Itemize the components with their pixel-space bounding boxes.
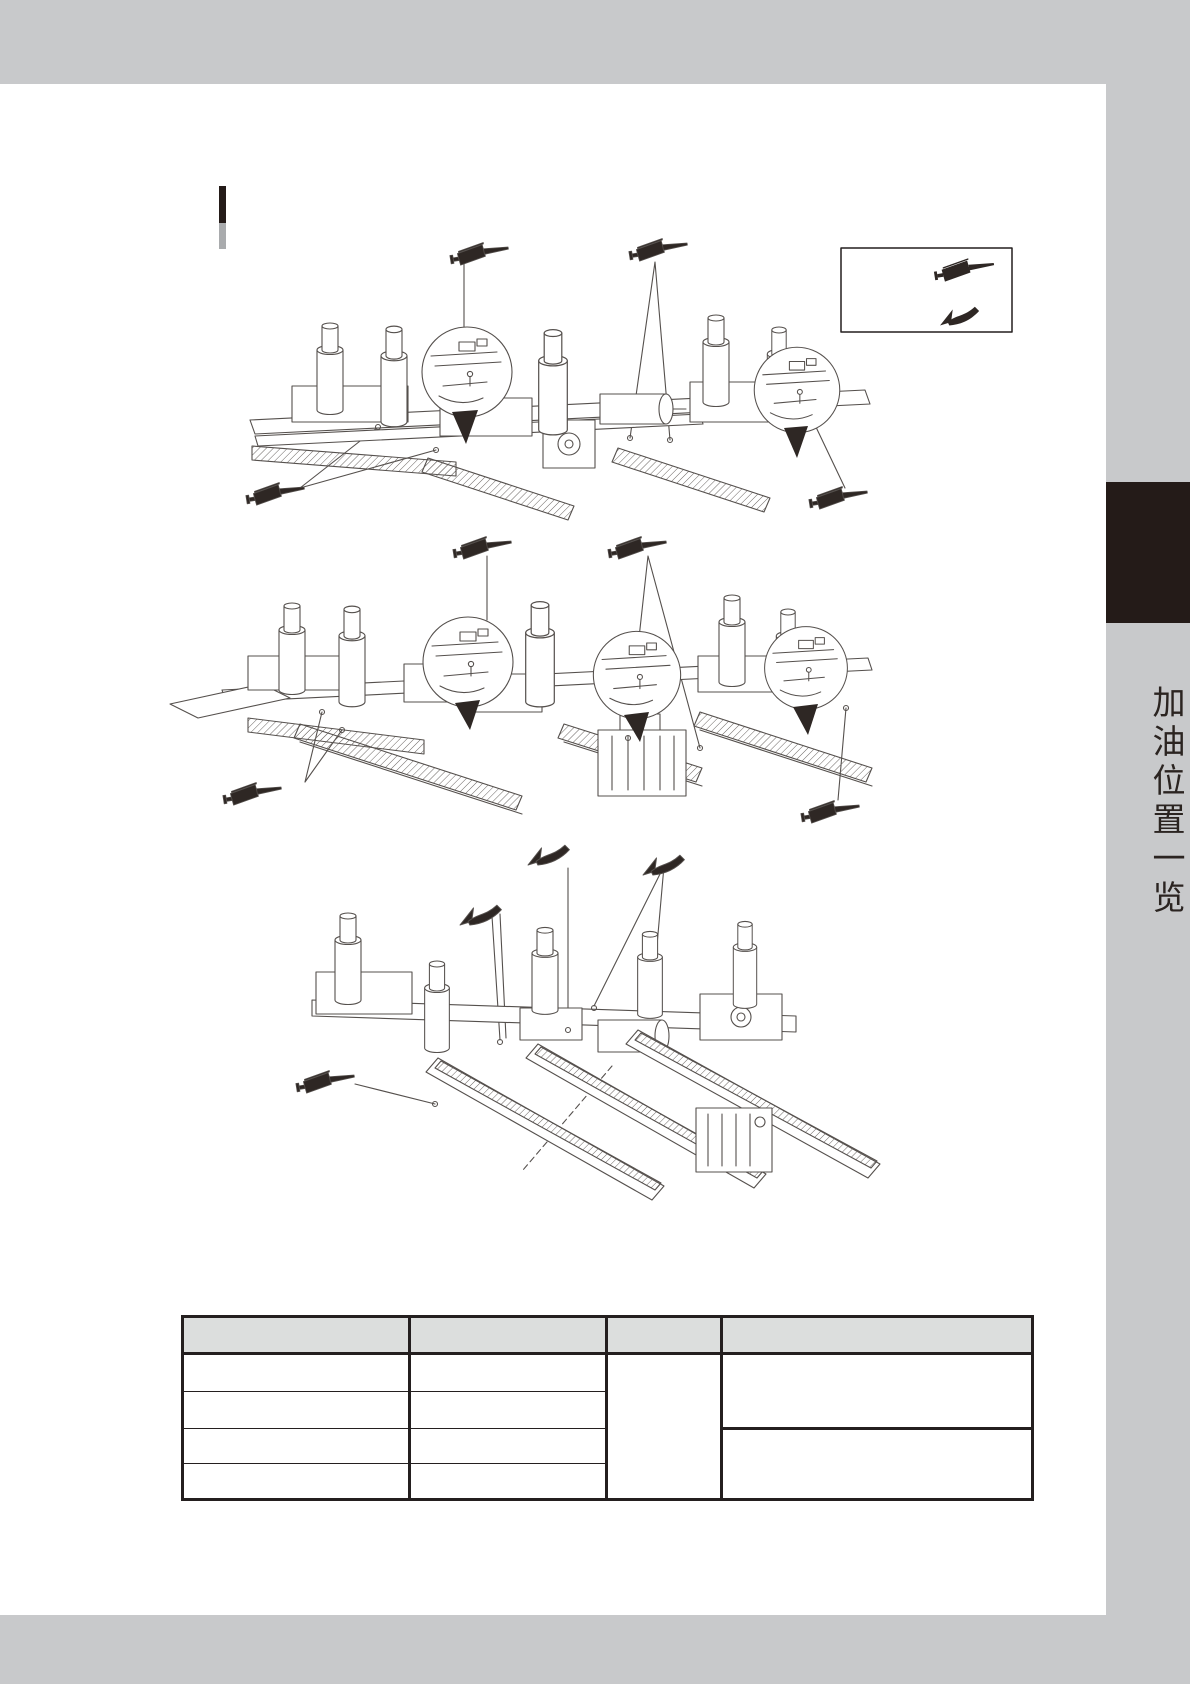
lubrication-spec-table bbox=[181, 1315, 1034, 1501]
table-cell bbox=[183, 1392, 410, 1429]
middle-machine-oiling-diagram bbox=[170, 533, 872, 825]
grease-gun-icon bbox=[800, 797, 861, 825]
curved-arrow-icon bbox=[528, 845, 569, 865]
legend-box bbox=[841, 248, 1012, 332]
table-header-cell bbox=[607, 1317, 722, 1354]
manual-page: 加油位置一览 bbox=[0, 0, 1190, 1684]
table-cell bbox=[410, 1392, 607, 1429]
top-machine-oiling-diagram bbox=[245, 235, 870, 520]
grease-gun-icon bbox=[452, 533, 513, 561]
grease-gun-icon bbox=[808, 483, 869, 511]
table-cell-merged bbox=[722, 1354, 1033, 1429]
detail-callout-circle bbox=[423, 617, 513, 707]
curved-arrow-icon bbox=[643, 855, 684, 875]
table-cell bbox=[183, 1354, 410, 1392]
bottom-machine-oiling-diagram bbox=[295, 845, 880, 1200]
detail-callout-circle bbox=[422, 327, 512, 417]
table-row bbox=[183, 1354, 1033, 1392]
detail-callout-circle bbox=[754, 347, 840, 433]
grease-gun-icon bbox=[628, 235, 689, 263]
detail-callout-circle bbox=[765, 627, 848, 710]
table-cell bbox=[183, 1429, 410, 1464]
table-header-cell bbox=[722, 1317, 1033, 1354]
table-cell bbox=[410, 1354, 607, 1392]
detail-callout-circle bbox=[593, 631, 680, 718]
table-cell bbox=[410, 1464, 607, 1500]
table-header-row bbox=[183, 1317, 1033, 1354]
table-cell-merged bbox=[607, 1354, 722, 1500]
table-header-cell bbox=[410, 1317, 607, 1354]
grease-gun-icon bbox=[295, 1067, 356, 1095]
curved-arrow-icon bbox=[460, 905, 501, 925]
grease-gun-icon bbox=[245, 479, 306, 507]
grease-gun-icon bbox=[449, 239, 510, 267]
table-cell bbox=[183, 1464, 410, 1500]
table-header-cell bbox=[183, 1317, 410, 1354]
grease-gun-icon bbox=[607, 533, 668, 561]
table-cell bbox=[410, 1429, 607, 1464]
table-cell-merged bbox=[722, 1429, 1033, 1500]
grease-gun-icon bbox=[222, 779, 283, 807]
